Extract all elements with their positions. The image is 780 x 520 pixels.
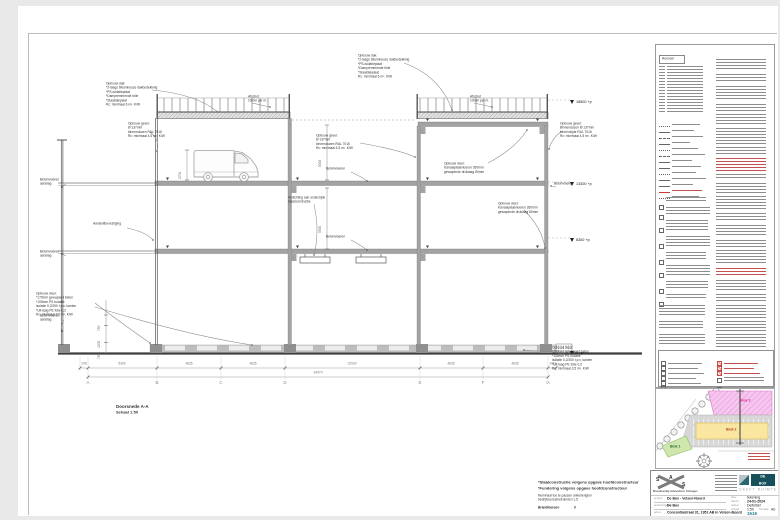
annotation-note: Opbouw gevel: Ø 137mm binnendozen RAL 70…: [316, 134, 353, 151]
material-row: [661, 368, 696, 372]
legend-paragraph: [716, 305, 766, 318]
format-value: A0: [771, 508, 775, 512]
date-value: 24-01-2024: [747, 500, 765, 504]
dimension-value: 4835: [500, 362, 530, 366]
note-line: *Staalconstructie volgens opgave hoofdco…: [538, 480, 639, 485]
debox-logo-mark: [739, 475, 749, 485]
annotation-note: Betonvloeren: [554, 182, 573, 186]
legend-note-row: [659, 252, 706, 256]
dimension-value: 2704: [179, 172, 183, 179]
material-row-fire: [717, 353, 758, 357]
firm-name: Bouwkundig Adviesburo Schagen: [653, 490, 698, 493]
material-row-fire: [717, 363, 760, 367]
legend-paragraph: [716, 240, 766, 247]
annotation-note: Opbouw vloer: *200mm gewapend beton *100…: [552, 346, 592, 371]
material-row: [661, 358, 698, 362]
note-line: bedrijfsverzamelruimten 1,5: [538, 498, 578, 502]
dimension-total: 34070: [303, 371, 333, 375]
phase-value: tekening: [747, 496, 760, 500]
grid-letter: F: [478, 380, 488, 385]
leader-dots: [61, 106, 552, 351]
annotation-note: Opbouw vloer: Kanaalplaatvloeren 260mm g…: [498, 202, 538, 215]
legend-symbol-row: [659, 176, 693, 180]
annotation-note: Afschot 10mm per m.: [470, 95, 489, 103]
siteplan-panel: Blok 1 Blok 2 Blok 3: [655, 388, 775, 469]
annotation-note: Opbouw vloer: Kanaalplaatvloeren 260mm g…: [444, 162, 484, 175]
legend-paragraph: [716, 128, 766, 144]
legend-paragraph: [659, 305, 705, 317]
roundabout-icon: [696, 453, 712, 468]
legend-symbol-row: [659, 164, 696, 168]
dimension-value: 5000: [319, 226, 323, 233]
grid-letter: C: [216, 380, 226, 385]
annotation-note: Betonvloeren aanslag: [40, 314, 59, 322]
dimension-value: 1200: [98, 341, 102, 348]
section-scale: Schaal 1:50: [116, 410, 138, 415]
level-value: 18500 +p: [576, 99, 592, 104]
legend-paragraph: [716, 294, 766, 302]
material-row: [661, 363, 704, 367]
brand-tagline: GEEFT RUIMTE: [739, 488, 777, 492]
legend-note-row: [659, 294, 706, 298]
phase-label: fase:: [731, 496, 737, 499]
dimension-value: 108: [537, 362, 567, 366]
legend-paragraph: [659, 321, 703, 330]
level-marker: 8300 +p: [570, 235, 603, 244]
legend-paragraph: [716, 104, 766, 111]
annotation-note: Betonvloeren: [326, 167, 345, 171]
firm-address-block: [715, 475, 737, 491]
level-triangle-icon: [570, 238, 574, 242]
sheet-label: werknr:: [731, 512, 740, 515]
legend-paragraph: [659, 334, 705, 346]
level-triangle-icon: [570, 100, 574, 104]
legend-symbol-row: [659, 188, 699, 192]
legend-paragraph: [716, 174, 766, 180]
dimension-value: 5000: [319, 160, 323, 167]
van-illustration: [194, 151, 258, 182]
annotation-note: Aansluitbevestiging: [93, 222, 121, 226]
legend-paragraph: [716, 114, 766, 125]
legend-symbol-row: [659, 146, 705, 150]
blok3-label: Blok 3: [740, 399, 751, 403]
dimension-value: 108: [69, 362, 99, 366]
legend-paragraph: [716, 158, 766, 171]
annotation-note: Opbouw gevel: Ø 137mm binnendozen RAL 70…: [128, 122, 165, 139]
legend-symbol-row: [659, 116, 700, 120]
legend-title-box: Renvooi: [659, 55, 685, 64]
annotation-note: Opbouw dak: *2-laags bitumineuze dakbede…: [106, 82, 157, 107]
dimension-value: 5300: [107, 362, 137, 366]
legend-note-row: [659, 265, 710, 269]
grid-letter: G: [543, 380, 553, 385]
dimension-value: 4835: [238, 362, 268, 366]
material-row: [717, 379, 764, 383]
section-title: Doorsnede A-A: [116, 404, 149, 410]
annotation-note: Verlichting aan onderzijde staalconstruc…: [288, 196, 325, 204]
drawing-sheet-viewport: 18500 +p 13300 +p 8300 +p 0 +p Opbouw da…: [0, 0, 780, 520]
legend-abbrev-codes: [659, 66, 665, 112]
legend-title: Renvooi: [662, 57, 674, 61]
material-row-fire: [717, 358, 754, 362]
material-row: [661, 373, 701, 377]
siteplan-red-note: [748, 453, 770, 462]
legend-paragraph: [716, 213, 766, 222]
legend-symbol-row: [659, 140, 698, 144]
legend-symbol-row: [659, 122, 694, 126]
annotation-note: Afschot 10mm per m.: [248, 95, 267, 103]
legend-note-row: [659, 197, 706, 201]
annotation-note: Opbouw dak: *2-laags bitumineuze dakbede…: [358, 54, 409, 79]
legend-paragraph: [716, 74, 766, 83]
legend-symbol-row: [659, 152, 692, 156]
note-label: Brandklassen: [538, 506, 559, 510]
legend-panel: Renvooi: [655, 44, 775, 388]
legend-symbol-row: [659, 158, 701, 162]
legend-paragraph: [716, 268, 766, 277]
client-value: De Box: [667, 504, 679, 508]
legend-paragraph: [716, 59, 766, 71]
columns: [57, 118, 548, 345]
legend-paragraph: [716, 321, 766, 331]
material-row: [661, 353, 702, 357]
blok1-label: Blok 1: [670, 445, 681, 449]
brand-line: DE: [761, 475, 766, 479]
dimension-value: 4835: [174, 362, 204, 366]
brand-line: BOX: [759, 482, 767, 486]
lighting-fixtures: [300, 254, 386, 263]
annotation-note: Betonvloeren aanslag: [40, 250, 59, 258]
legend-notes-column: [716, 59, 772, 347]
annotation-note: Betonvloeren aanslag: [40, 178, 59, 186]
legend-note-row: [659, 207, 710, 211]
sheet-number: 1516: [747, 511, 757, 516]
legend-paragraph: [716, 280, 766, 291]
dimension-value: 750: [98, 326, 102, 331]
note-line: *Fundering volgens opgave hoofdconstruct…: [538, 486, 627, 491]
legend-paragraph: [716, 147, 766, 155]
date-label: datum:: [731, 500, 739, 503]
level-marker: 13300 +p: [570, 179, 608, 188]
material-row: [717, 370, 764, 374]
grid-letter: E: [415, 380, 425, 385]
legend-symbol-row-fire: [659, 182, 702, 186]
status-label: status:: [731, 504, 739, 507]
note-value: 0: [574, 506, 576, 510]
status-value: Definitief: [747, 504, 761, 508]
level-value: 8300 +p: [576, 237, 590, 242]
scale-label: schaal:: [731, 508, 740, 511]
blok2-label: Blok 2: [726, 428, 737, 432]
legend-symbol-row: [659, 134, 690, 138]
logo-letter: A: [669, 475, 673, 481]
project-value: De Box - Velsen-Noord: [667, 497, 705, 501]
dimension-value: 10530: [337, 362, 367, 366]
address-label: adres:: [654, 511, 662, 514]
debox-logo: DE BOX: [751, 474, 775, 486]
project-label: project:: [654, 497, 663, 500]
legend-paragraph: [716, 225, 766, 237]
titleblock-panel: S A S Bouwkundig Adviesburo Schagen DE B…: [650, 470, 778, 516]
annotation-note: Opbouw gevel: Binnendozen Ø 137mm binnen…: [560, 122, 597, 139]
legend-symbol-row: [659, 128, 703, 132]
legend-abbrev-terms: [667, 66, 703, 112]
annotation-note: Betonvloeren: [326, 235, 345, 239]
floor-slabs: [58, 122, 548, 254]
sas-logo: S A S: [655, 473, 689, 491]
legend-paragraph: [716, 183, 766, 193]
legend-paragraph: [716, 86, 766, 101]
roof-decks: [157, 94, 549, 120]
dimension-value: 4835: [436, 362, 466, 366]
legend-paragraph: [716, 250, 766, 265]
legend-paragraph: [716, 334, 766, 347]
foundation: [58, 344, 572, 353]
legend-note-row: [659, 220, 708, 224]
level-marker: 18500 +p: [570, 97, 608, 106]
legend-paragraph: [716, 196, 766, 210]
material-row: [661, 378, 699, 382]
logo-letter: S: [682, 482, 686, 488]
legend-symbol-row: [659, 170, 706, 174]
format-label: formaat:: [759, 508, 769, 511]
level-value: 13300 +p: [576, 181, 592, 186]
legend-materials-box: [658, 350, 774, 387]
dimension-value: 750: [98, 354, 102, 359]
grid-letter: B: [152, 380, 162, 385]
legend-note-row: [659, 236, 710, 240]
legend-note-row: [659, 281, 708, 285]
grid-letter: D: [280, 380, 290, 385]
grid-letter: A: [83, 380, 93, 385]
